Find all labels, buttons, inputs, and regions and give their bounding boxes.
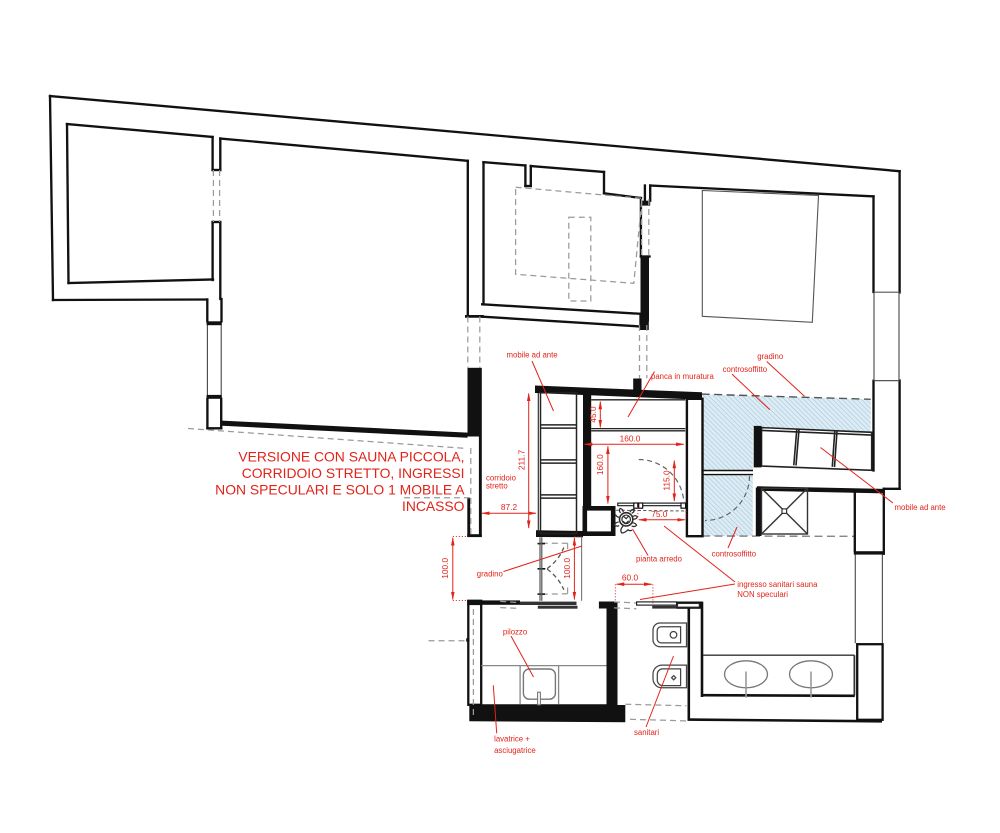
svg-text:160.0: 160.0 bbox=[620, 434, 641, 444]
svg-text:controsoffitto: controsoffitto bbox=[723, 365, 768, 374]
svg-text:100.0: 100.0 bbox=[440, 558, 450, 579]
svg-text:75.0: 75.0 bbox=[651, 509, 668, 519]
svg-text:asciugatrice: asciugatrice bbox=[494, 746, 536, 755]
svg-text:pilozzo: pilozzo bbox=[503, 627, 528, 636]
svg-text:100.0: 100.0 bbox=[562, 558, 572, 579]
svg-text:160.0: 160.0 bbox=[595, 454, 605, 475]
svg-text:VERSIONE CON SAUNA PICCOLA,: VERSIONE CON SAUNA PICCOLA, bbox=[238, 449, 464, 465]
svg-text:87.2: 87.2 bbox=[501, 502, 518, 512]
svg-text:sanitari: sanitari bbox=[634, 728, 659, 737]
svg-text:NON SPECULARI E SOLO 1 MOBILE: NON SPECULARI E SOLO 1 MOBILE A bbox=[215, 482, 465, 498]
svg-text:stretto: stretto bbox=[486, 482, 508, 491]
svg-text:panca in muratura: panca in muratura bbox=[651, 372, 715, 381]
svg-text:211.7: 211.7 bbox=[517, 450, 527, 471]
svg-text:NON speculari: NON speculari bbox=[737, 590, 788, 599]
svg-text:INCASSO: INCASSO bbox=[402, 498, 465, 514]
svg-text:mobile ad ante: mobile ad ante bbox=[507, 351, 558, 360]
svg-text:ingresso sanitari sauna: ingresso sanitari sauna bbox=[737, 580, 818, 589]
svg-text:60.0: 60.0 bbox=[622, 573, 639, 583]
svg-text:45.0: 45.0 bbox=[588, 406, 598, 423]
svg-text:gradino: gradino bbox=[477, 570, 504, 579]
svg-text:lavatrice +: lavatrice + bbox=[494, 735, 530, 744]
svg-text:controsoffitto: controsoffitto bbox=[712, 550, 757, 559]
svg-text:CORRIDOIO STRETTO, INGRESSI: CORRIDOIO STRETTO, INGRESSI bbox=[242, 465, 465, 481]
svg-text:gradino: gradino bbox=[757, 352, 784, 361]
svg-text:pianta arredo: pianta arredo bbox=[636, 555, 683, 564]
svg-text:115.0: 115.0 bbox=[661, 470, 671, 491]
svg-text:mobile ad ante: mobile ad ante bbox=[895, 503, 946, 512]
